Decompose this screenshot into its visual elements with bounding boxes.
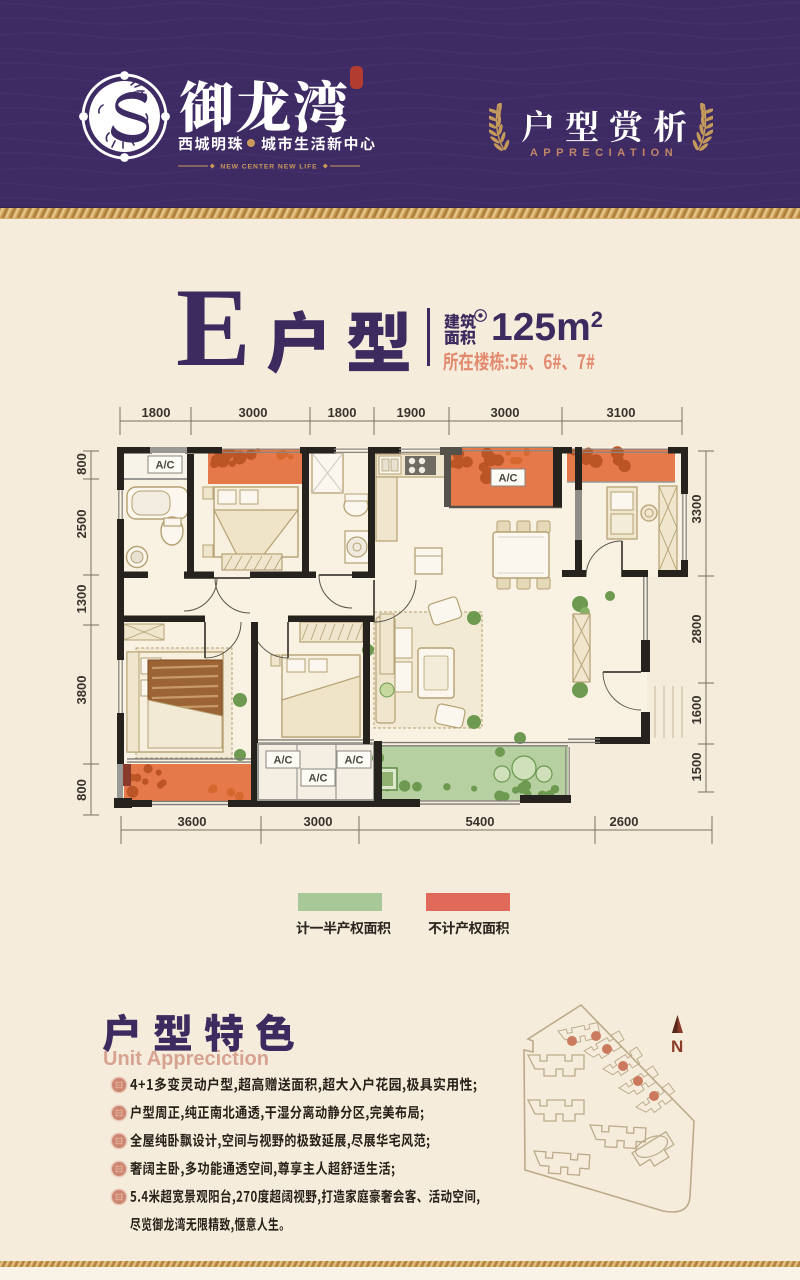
svg-text:3000: 3000 xyxy=(491,405,520,420)
svg-text:1300: 1300 xyxy=(74,585,89,614)
svg-text:1900: 1900 xyxy=(397,405,426,420)
svg-text:3100: 3100 xyxy=(607,405,636,420)
svg-text:2800: 2800 xyxy=(689,615,704,644)
svg-text:2600: 2600 xyxy=(610,814,639,829)
svg-text:3600: 3600 xyxy=(178,814,207,829)
svg-text:A/C: A/C xyxy=(156,460,175,472)
svg-text:800: 800 xyxy=(74,779,89,801)
svg-text:5400: 5400 xyxy=(466,814,495,829)
svg-text:3000: 3000 xyxy=(239,405,268,420)
svg-text:800: 800 xyxy=(74,453,89,475)
svg-text:A/C: A/C xyxy=(274,755,293,767)
svg-text:A/C: A/C xyxy=(309,773,328,785)
svg-text:3300: 3300 xyxy=(689,495,704,524)
svg-text:1800: 1800 xyxy=(142,405,171,420)
svg-text:3800: 3800 xyxy=(74,676,89,705)
svg-text:N: N xyxy=(671,1037,683,1056)
svg-text:A/C: A/C xyxy=(499,473,518,485)
svg-text:1600: 1600 xyxy=(689,696,704,725)
svg-text:2500: 2500 xyxy=(74,510,89,539)
svg-text:3000: 3000 xyxy=(304,814,333,829)
svg-text:A/C: A/C xyxy=(345,755,364,767)
svg-text:1500: 1500 xyxy=(689,753,704,782)
svg-text:NEW CENTER NEW LIFE: NEW CENTER NEW LIFE xyxy=(220,164,317,171)
svg-text:1800: 1800 xyxy=(328,405,357,420)
